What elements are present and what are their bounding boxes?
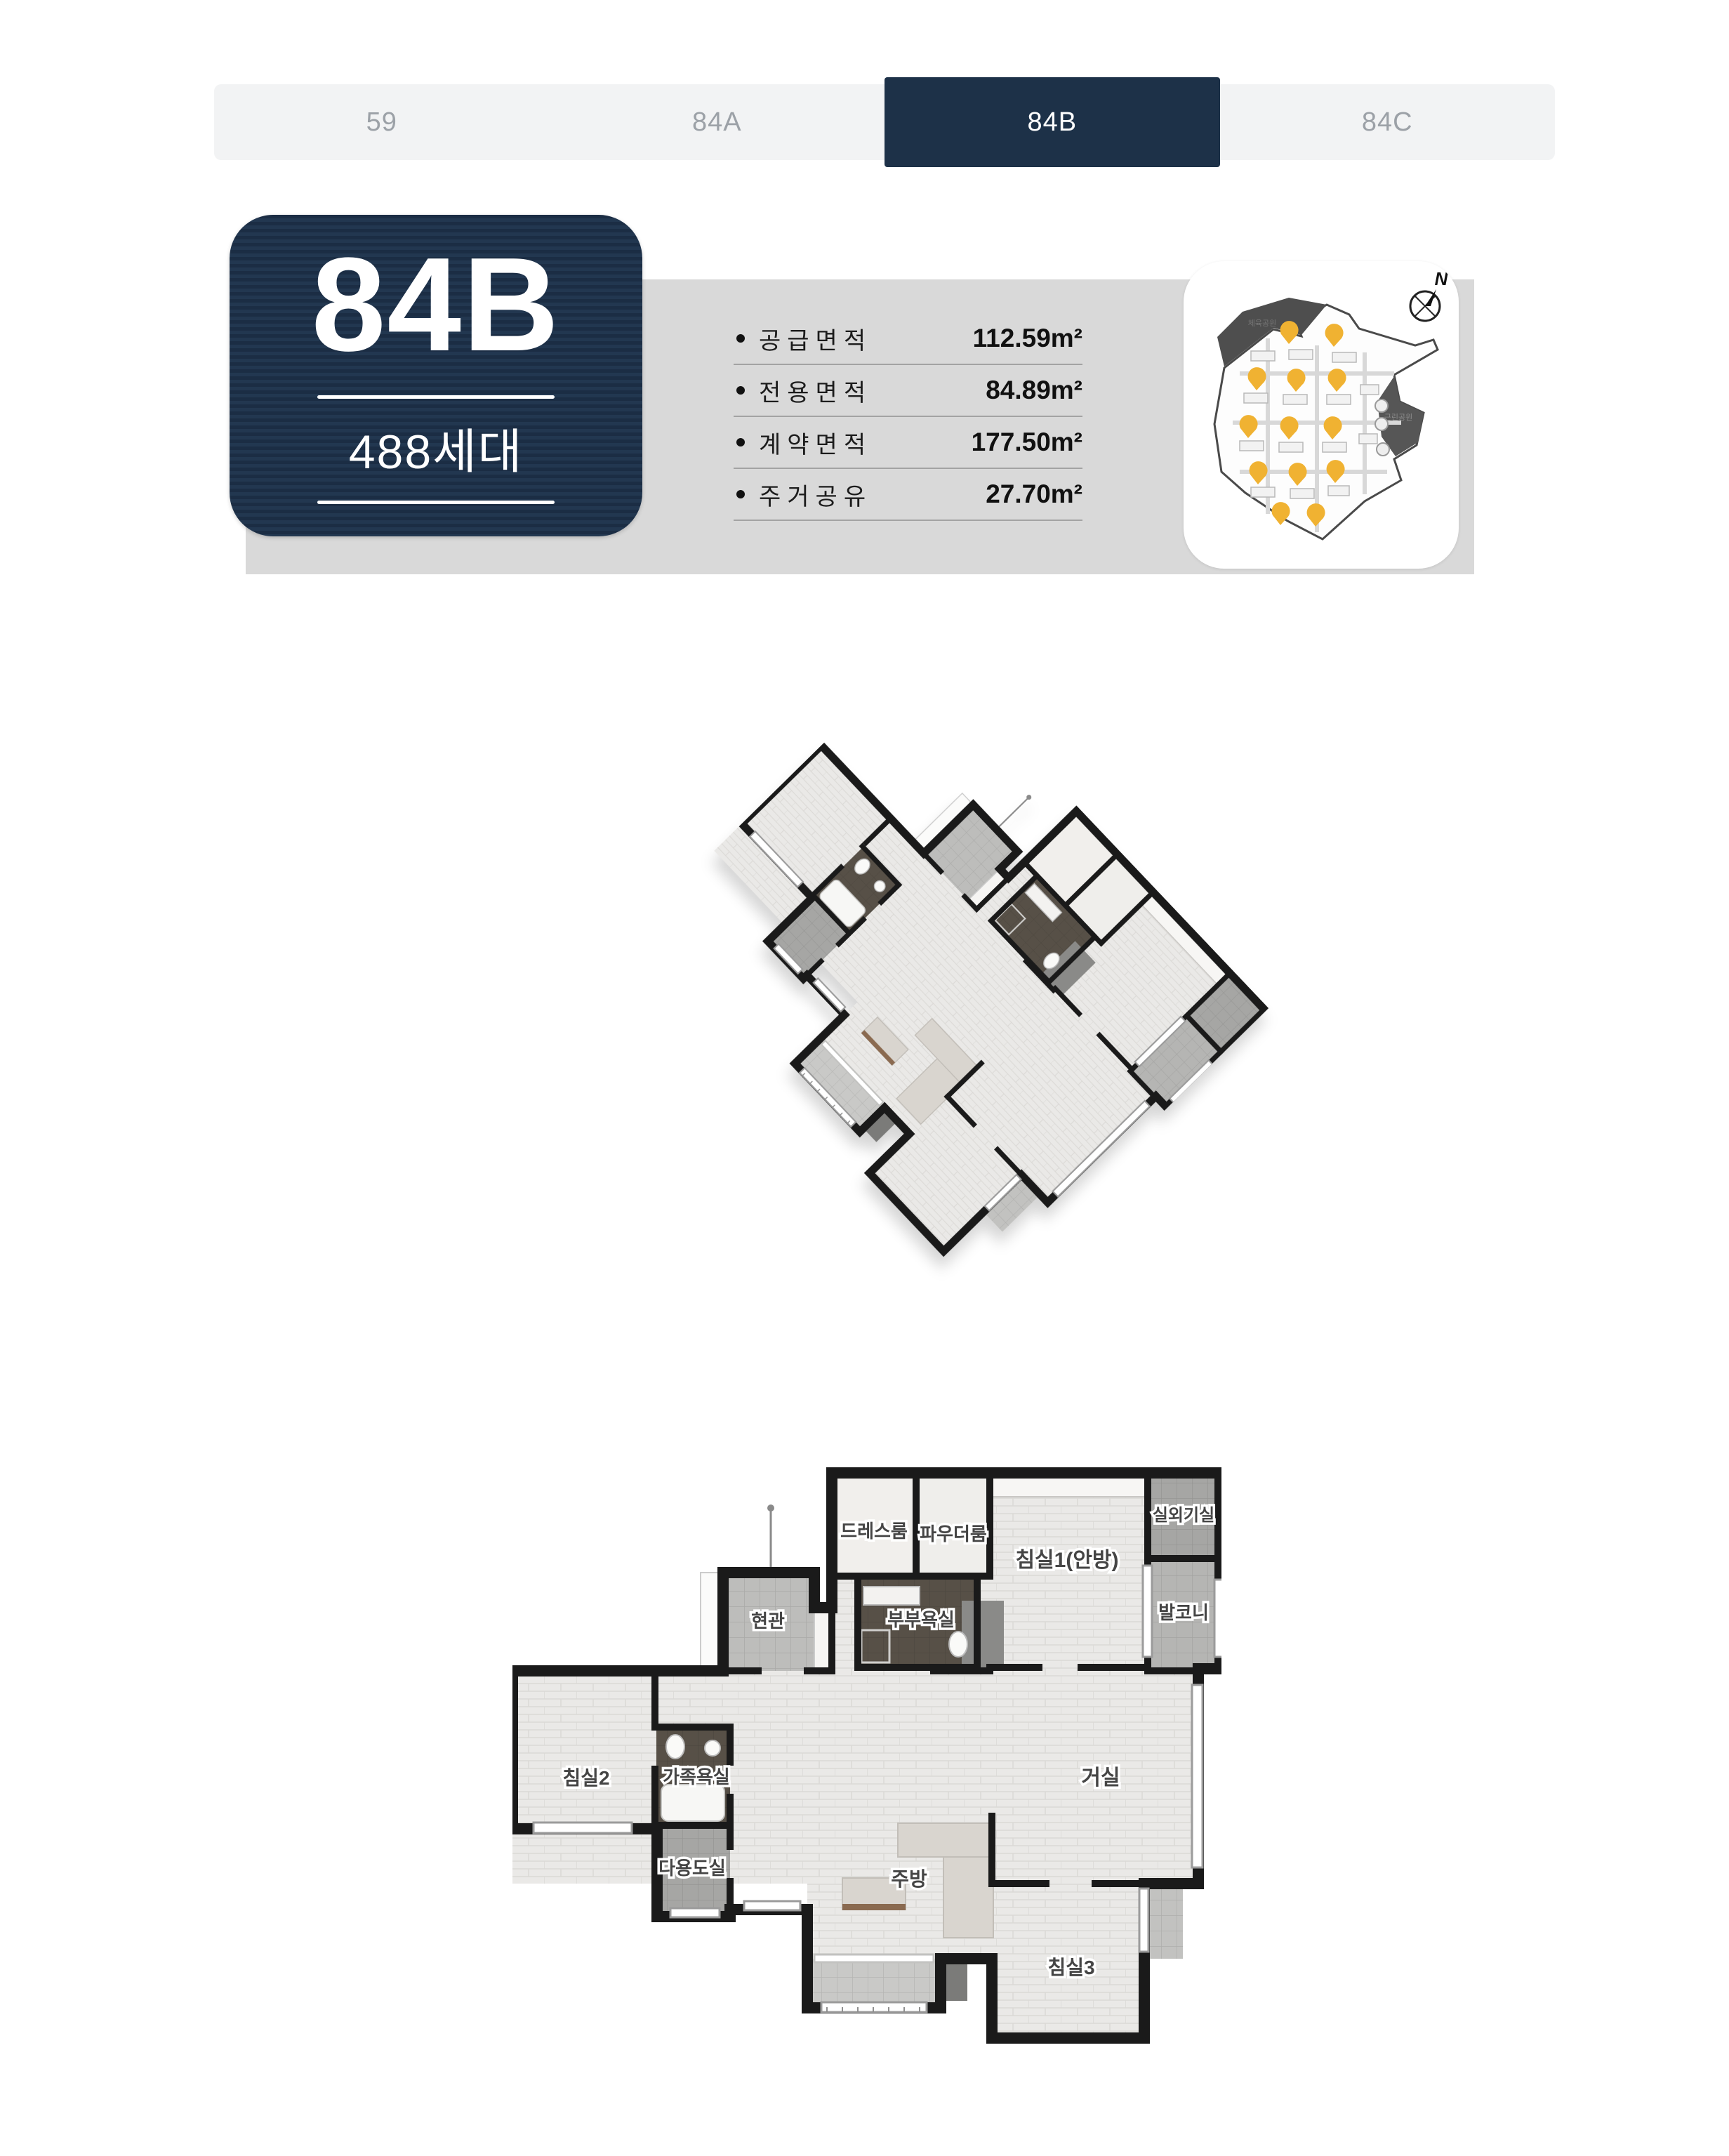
site-map-image: 체육공원 근린공원 — [1184, 261, 1459, 569]
unit-type-title: 84B — [312, 238, 561, 371]
room-label-bedroom2: 침실2 — [562, 1767, 609, 1789]
spec-row-supply: 공급면적 112.59m² — [734, 313, 1082, 365]
spec-value: 84.89m² — [986, 376, 1082, 405]
room-label-balcony: 발코니 — [1158, 1602, 1209, 1623]
floor-plan-3d — [586, 670, 1295, 1288]
room-label-powderroom: 파우더룸 — [920, 1523, 987, 1545]
tab-59[interactable]: 59 — [214, 84, 550, 160]
spec-value: 27.70m² — [986, 480, 1082, 509]
room-label-bedroom1: 침실1(안방) — [1015, 1549, 1118, 1572]
room-label-master-bath: 부부욕실 — [887, 1609, 955, 1630]
compass-north-label: N — [1435, 268, 1449, 289]
room-label-living: 거실 — [1081, 1766, 1120, 1790]
floor-plan-2d: 드레스룸 파우더룸 침실1(안방) 실외기실 발코니 부부욕실 현관 침실2 가… — [512, 1467, 1221, 2085]
spec-label: 전용면적 — [759, 373, 872, 408]
divider-line — [317, 395, 555, 399]
park-label: 체육공원 — [1248, 319, 1276, 328]
tab-59-label: 59 — [366, 107, 397, 138]
tab-84c-label: 84C — [1362, 107, 1413, 138]
area-spec-list: 공급면적 112.59m² 전용면적 84.89m² 계약면적 177.50m²… — [734, 313, 1082, 521]
spec-label: 주거공유 — [759, 477, 872, 512]
room-label-kitchen: 주방 — [891, 1868, 927, 1890]
tab-84a-label: 84A — [692, 107, 742, 138]
room-label-utility: 다용도실 — [658, 1858, 726, 1879]
bullet-icon — [736, 334, 745, 343]
unit-type-card: 84B 488세대 — [230, 215, 642, 536]
room-label-bedroom3: 침실3 — [1047, 1957, 1094, 1978]
room-label-entrance: 현관 — [751, 1611, 785, 1632]
floor-plan-3d-image — [613, 644, 1268, 1314]
room-label-dressroom: 드레스룸 — [840, 1521, 908, 1542]
spec-label: 공급면적 — [759, 322, 872, 356]
compass-icon: N — [1410, 268, 1449, 321]
room-label-family-bath: 가족욕실 — [663, 1766, 730, 1787]
bullet-icon — [736, 490, 745, 498]
divider-line — [317, 501, 555, 504]
tab-84b-active[interactable]: 84B — [885, 77, 1220, 167]
bullet-icon — [736, 438, 745, 447]
tab-84c[interactable]: 84C — [1220, 84, 1556, 160]
room-label-ac-room: 실외기실 — [1153, 1506, 1214, 1525]
site-map-card: 체육공원 근린공원 — [1184, 261, 1459, 569]
unit-type-tabbar: 59 84A 84B 84C — [214, 84, 1555, 160]
spec-row-contract: 계약면적 177.50m² — [734, 417, 1082, 469]
tab-84a[interactable]: 84A — [550, 84, 885, 160]
spec-row-exclusive: 전용면적 84.89m² — [734, 365, 1082, 417]
unit-households: 488세대 — [349, 413, 524, 482]
bullet-icon — [736, 386, 745, 395]
unit-type-page: 59 84A 84B 84C 84B 488세대 공급면적 112.59m² 전… — [0, 0, 1729, 2156]
spec-value: 112.59m² — [973, 324, 1082, 353]
floor-plan-2d-image: 드레스룸 파우더룸 침실1(안방) 실외기실 발코니 부부욕실 현관 침실2 가… — [512, 1467, 1221, 2085]
spec-value: 177.50m² — [972, 428, 1082, 457]
spec-label: 계약면적 — [759, 425, 872, 460]
spec-row-shared: 주거공유 27.70m² — [734, 469, 1082, 521]
tab-84b-label: 84B — [1027, 107, 1077, 138]
